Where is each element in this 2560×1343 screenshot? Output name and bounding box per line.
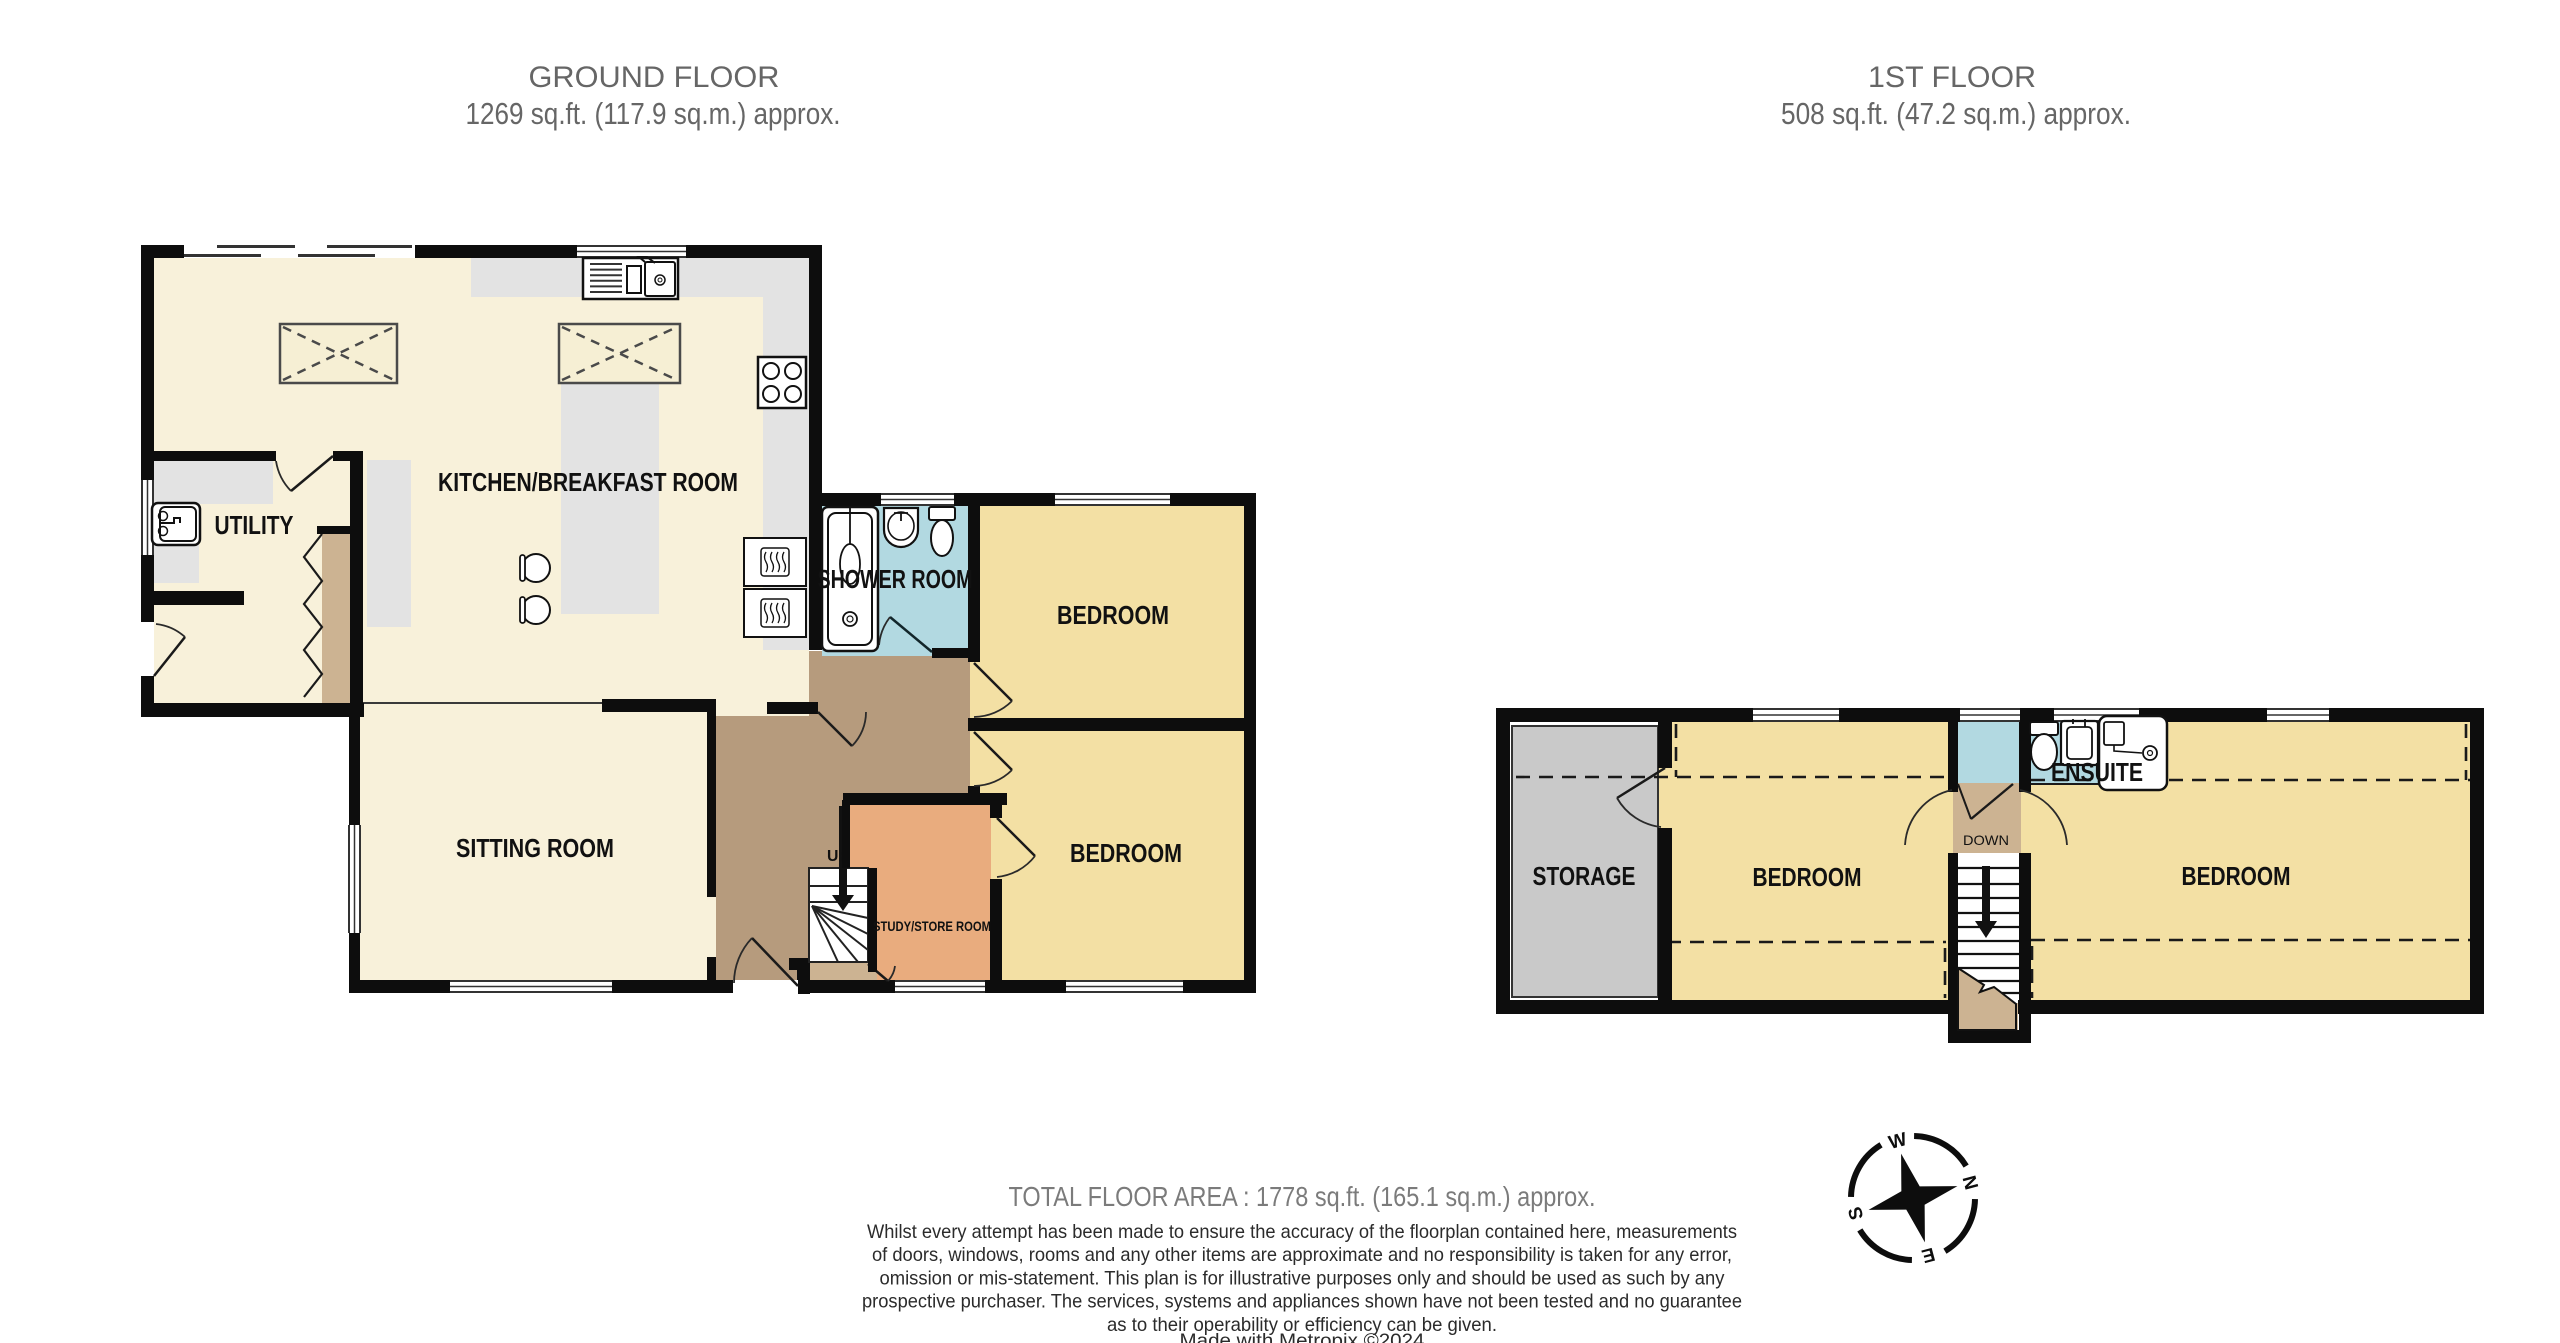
svg-text:SHOWER ROOM: SHOWER ROOM	[818, 564, 973, 594]
svg-text:UTILITY: UTILITY	[215, 510, 294, 540]
svg-text:TOTAL FLOOR AREA : 1778 sq.ft.: TOTAL FLOOR AREA : 1778 sq.ft. (165.1 sq…	[1009, 1181, 1596, 1212]
svg-text:ENSUITE: ENSUITE	[2051, 757, 2143, 787]
svg-text:DOWN: DOWN	[1963, 832, 2009, 848]
svg-text:of doors, windows, rooms and a: of doors, windows, rooms and any other i…	[872, 1244, 1732, 1266]
svg-text:Made with Metropix ©2024: Made with Metropix ©2024	[1180, 1330, 1425, 1343]
svg-text:STORAGE: STORAGE	[1533, 861, 1636, 891]
svg-text:508 sq.ft. (47.2 sq.m.) approx: 508 sq.ft. (47.2 sq.m.) approx.	[1781, 96, 2131, 131]
svg-text:1269 sq.ft. (117.9 sq.m.) appr: 1269 sq.ft. (117.9 sq.m.) approx.	[466, 96, 841, 131]
svg-text:BEDROOM: BEDROOM	[1753, 862, 1862, 892]
svg-text:1ST FLOOR: 1ST FLOOR	[1868, 61, 2036, 94]
svg-text:BEDROOM: BEDROOM	[1057, 600, 1169, 630]
svg-text:SITTING ROOM: SITTING ROOM	[456, 833, 614, 863]
svg-text:GROUND FLOOR: GROUND FLOOR	[529, 61, 780, 94]
svg-text:omission or mis-statement. Thi: omission or mis-statement. This plan is …	[880, 1267, 1725, 1289]
svg-text:KITCHEN/BREAKFAST ROOM: KITCHEN/BREAKFAST ROOM	[438, 467, 738, 497]
svg-text:prospective purchaser. The ser: prospective purchaser. The services, sys…	[862, 1291, 1742, 1313]
svg-text:BEDROOM: BEDROOM	[2182, 861, 2291, 891]
svg-text:Whilst every attempt has been: Whilst every attempt has been made to en…	[867, 1221, 1737, 1243]
svg-text:BEDROOM: BEDROOM	[1070, 838, 1182, 868]
svg-text:STUDY/STORE ROOM: STUDY/STORE ROOM	[873, 918, 991, 934]
